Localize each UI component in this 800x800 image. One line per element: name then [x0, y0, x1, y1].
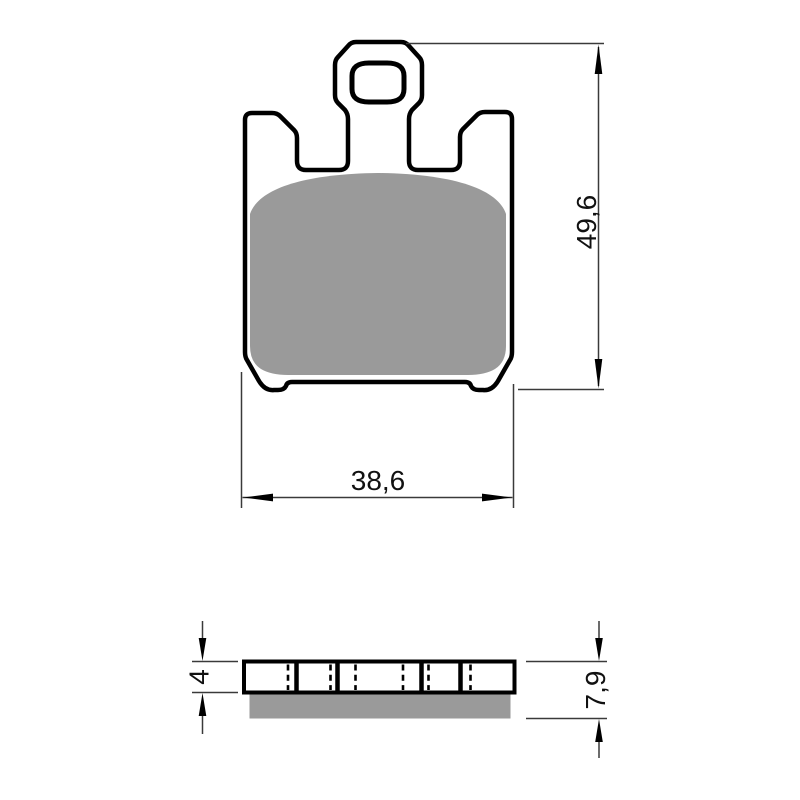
arrowhead-right [482, 494, 512, 502]
width-dim-label: 38,6 [351, 465, 406, 496]
brake-pad-technical-drawing: 49,6 38,6 [0, 0, 800, 800]
arrowhead-up [199, 693, 207, 716]
backplate-side [244, 662, 515, 693]
arrowhead-down [595, 359, 603, 389]
mounting-hole [352, 63, 404, 102]
friction-material-layer [250, 691, 511, 719]
drawing-svg: 49,6 38,6 [0, 0, 800, 800]
dimension-width: 38,6 [242, 372, 514, 508]
plate-thickness-label: 4 [184, 669, 215, 685]
friction-material-face [250, 173, 506, 375]
top-view [245, 42, 512, 390]
height-dim-label: 49,6 [571, 195, 602, 250]
side-view [244, 662, 515, 719]
dimension-overall-thickness: 7,9 [526, 621, 611, 758]
arrowhead-left [243, 494, 273, 502]
dimension-plate-thickness: 4 [184, 621, 239, 734]
arrowhead-down [595, 638, 603, 661]
arrowhead-up [595, 719, 603, 742]
arrowhead-up [595, 45, 603, 75]
arrowhead-down [199, 638, 207, 661]
overall-thickness-label: 7,9 [580, 671, 611, 710]
